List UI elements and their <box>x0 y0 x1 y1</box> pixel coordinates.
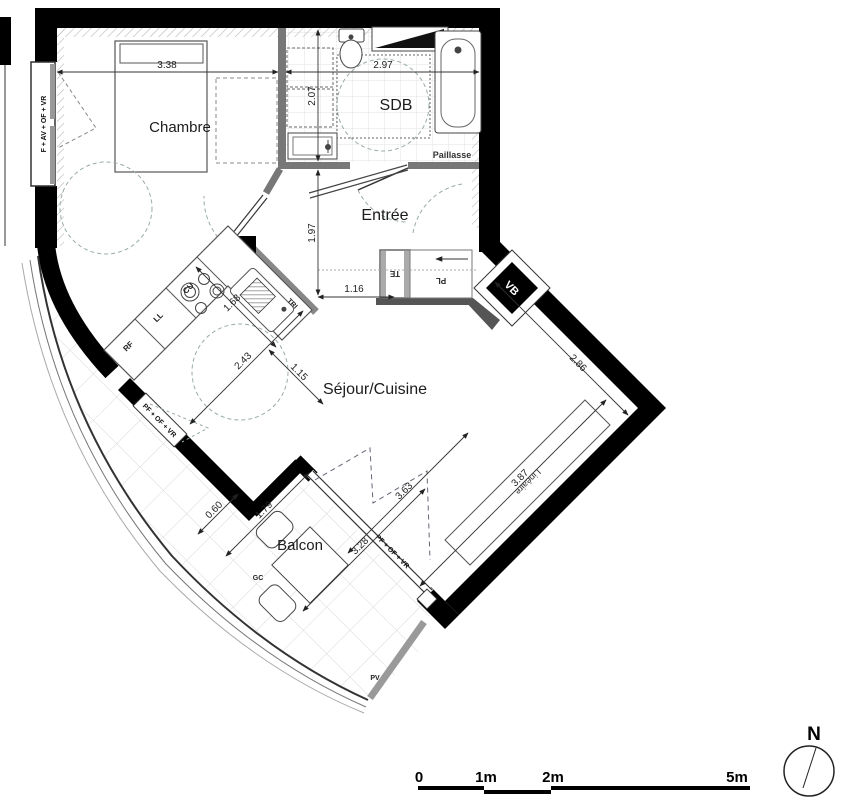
te-box: TE <box>380 250 410 298</box>
room-label-sejour: Séjour/Cuisine <box>323 381 427 398</box>
room-label-sdb: SDB <box>380 97 413 114</box>
room-label-balcon: Balcon <box>277 537 323 554</box>
dim-2-97: 2.97 <box>373 60 393 71</box>
dim-1-97: 1.97 <box>307 223 318 243</box>
pl-closet: PL <box>410 250 472 298</box>
floor-plan-page: F + AV + OF + VR PF + OF + VR PF + OF + … <box>0 0 846 800</box>
dim-3-38: 3.38 <box>157 60 177 71</box>
scale-bar: 0 1m 2m 5m <box>415 769 750 794</box>
room-label-entree: Entrée <box>361 207 408 224</box>
floor-plan-drawing: F + AV + OF + VR PF + OF + VR PF + OF + … <box>0 0 846 800</box>
pv-label: PV <box>370 675 380 682</box>
dim-2-07: 2.07 <box>307 86 318 106</box>
dim-1-16: 1.16 <box>344 284 364 295</box>
scale-2m: 2m <box>542 769 564 786</box>
dim-2-43: 2.43 <box>233 350 255 372</box>
wardrobe-dashed <box>216 78 277 163</box>
window-left: F + AV + OF + VR <box>31 62 55 186</box>
washbasin-icon <box>288 133 337 159</box>
gc-label: GC <box>253 575 264 582</box>
toilet-icon <box>339 29 364 68</box>
room-label-chambre: Chambre <box>149 119 211 136</box>
north-label: N <box>807 724 821 745</box>
bathtub-icon <box>435 31 481 133</box>
dim-3-63: 3.63 <box>394 480 416 502</box>
north-compass: N <box>784 724 834 796</box>
turning-circle-chambre <box>60 162 152 254</box>
left-wall-hatch <box>57 28 64 246</box>
scale-5m: 5m <box>726 769 748 786</box>
dim-1-15: 1.15 <box>288 362 310 384</box>
paillasse-label: Paillasse <box>433 150 472 160</box>
pl-label: PL <box>436 276 446 285</box>
scale-0: 0 <box>415 769 423 786</box>
dim-2-86: 2.86 <box>567 353 589 375</box>
scale-1m: 1m <box>475 769 497 786</box>
window-left-label: F + AV + OF + VR <box>41 96 48 153</box>
